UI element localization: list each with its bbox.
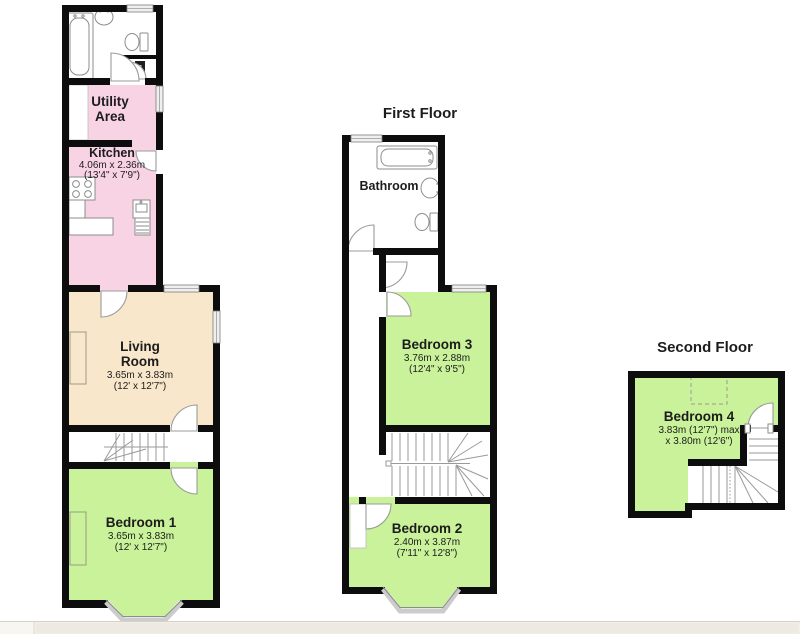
second-floor-plan: Second Floor: [628, 339, 785, 518]
bedroom1-label: Bedroom 1: [106, 515, 177, 530]
scrollbar-thumb[interactable]: [36, 623, 798, 633]
living-dims-imperial: (12' x 12'7"): [114, 381, 166, 392]
bedroom4-dims-line2: x 3.80m (12'6"): [665, 436, 732, 447]
first-floor-plan: First Floor: [342, 105, 497, 611]
bedroom3-dims-metric: 3.76m x 2.88m: [404, 353, 470, 364]
bedroom4-dims-line1: 3.83m (12'7") max: [658, 425, 739, 436]
floorplan-image: B: [0, 0, 800, 634]
utility-lobby-floor: [69, 85, 88, 140]
kitchen-sink-icon: [133, 200, 150, 218]
bedroom2-dims-metric: 2.40m x 3.87m: [394, 537, 460, 548]
bedroom2-label: Bedroom 2: [392, 521, 463, 536]
bedroom4-label: Bedroom 4: [664, 409, 735, 424]
bathtub-icon: [66, 13, 93, 79]
bedroom3-dims-imperial: (12'4" x 9'5"): [409, 364, 465, 375]
living-label-line1: Living: [120, 339, 160, 354]
kitchen-label: Kitchen: [89, 146, 135, 160]
ground-floor-plan: B: [62, 5, 220, 620]
bedroom2-alcove: [350, 504, 366, 548]
bedroom1-dims-imperial: (12' x 12'7"): [115, 542, 167, 553]
utility-label-line1: Utility: [91, 94, 129, 109]
kitchen-counter2-icon: [69, 218, 113, 235]
living-label-line2: Room: [121, 354, 159, 369]
second-floor-title: Second Floor: [657, 339, 753, 356]
bedroom3-label: Bedroom 3: [402, 337, 473, 352]
kitchen-counter-icon: [69, 200, 85, 218]
bedroom2-dims-imperial: (7'11" x 12'8"): [397, 548, 458, 559]
toilet-icon: [125, 33, 148, 51]
bathroom-label: Bathroom: [359, 179, 418, 193]
horizontal-scrollbar[interactable]: [0, 621, 800, 634]
living-dims-metric: 3.65m x 3.83m: [107, 370, 173, 381]
utility-label-line2: Area: [95, 109, 126, 124]
scrollbar-corner[interactable]: [0, 622, 34, 634]
dishwasher-icon: [135, 218, 150, 235]
first-bathtub-icon: [377, 146, 437, 169]
first-toilet-icon: [415, 213, 438, 231]
first-floor-title: First Floor: [383, 105, 457, 122]
kitchen-dims-imperial: (13'4" x 7'9"): [84, 170, 140, 181]
bedroom1-dims-metric: 3.65m x 3.83m: [108, 531, 174, 542]
